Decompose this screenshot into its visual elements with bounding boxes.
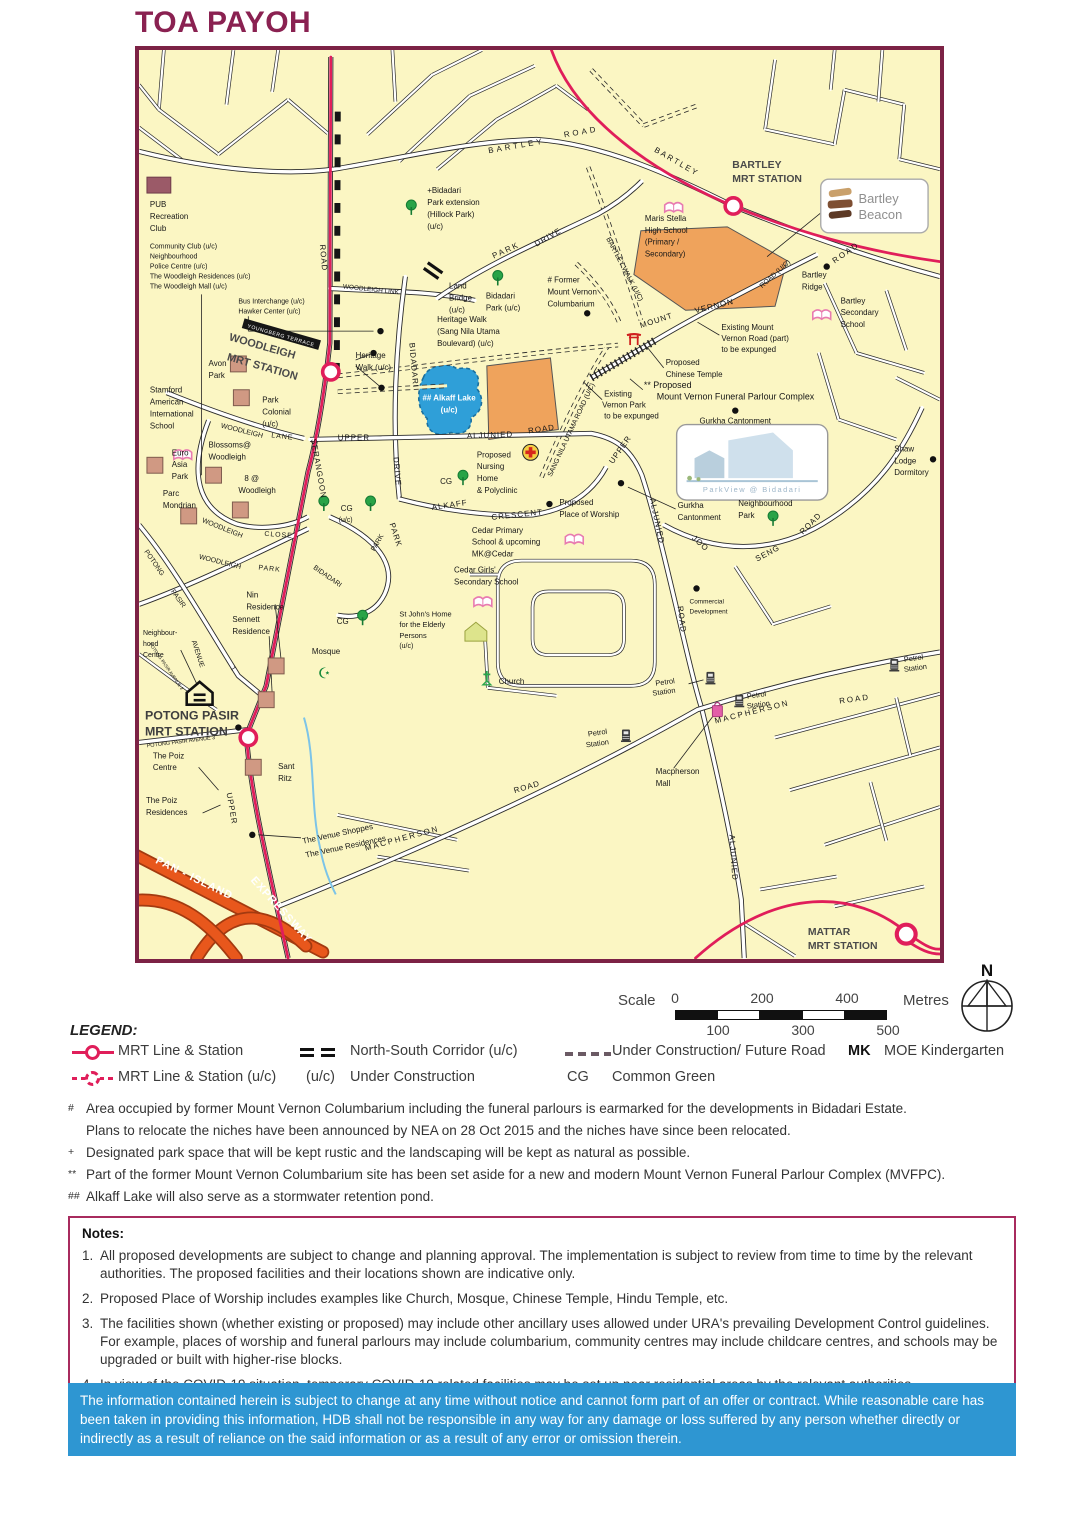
map-label: Mall [656,779,671,788]
map-label: Neighbour- [143,630,177,637]
road [819,353,839,420]
map-label: Woodleigh [209,452,246,461]
map-label: Lodge [894,456,917,465]
road [470,66,535,96]
legend-mrt-uc-label: MRT Line & Station (u/c) [118,1069,276,1085]
map-label: Church [499,677,525,686]
map-label: Park (u/c) [486,303,521,312]
map-label: Walk (u/c) [356,363,392,372]
map-label: CG [337,617,349,626]
nursing-home-icon [523,444,539,460]
map-label: WOODLEIGH LINK [343,283,400,296]
map-label: Secondary [841,308,879,317]
road [835,90,845,145]
map-label: Sennett [232,615,260,624]
footnote-text: Area occupied by former Mount Vernon Col… [86,1101,907,1116]
home-icon [465,622,487,641]
legend-heading: LEGEND: [70,1022,1030,1039]
school-icon [474,597,492,606]
map-label: CLOSE [264,531,293,540]
map-label: WOODLEIGH [201,517,244,540]
map-label: Maris Stella [645,214,687,223]
footnote: Plans to relocate the niches have been a… [68,1120,1018,1142]
map-label: SERANGOON [309,438,328,499]
road [790,747,940,790]
road [899,159,940,169]
map-label: MRT STATION [732,174,802,185]
condo-icon [268,658,284,674]
future-road-icon [565,1052,611,1056]
road [533,591,624,655]
map-label: (Primary / [645,238,680,247]
map-label: Cedar Girls' [454,566,496,575]
icon-part [377,328,383,334]
icon-part [235,724,241,730]
map-label: Development [690,608,728,615]
map-label: (u/c) [399,643,413,650]
map-label: Gurkha Cantonment [700,417,772,426]
legend-cg-abbr: CG [567,1069,589,1085]
road [773,606,831,624]
map-label: CRESCENT [491,508,543,522]
map-label: JOO [690,534,710,554]
map-label: Macpherson [656,767,700,776]
icon-part [705,683,715,685]
road [735,567,773,625]
footnote: ##Alkaff Lake will also serve as a storm… [68,1186,1018,1208]
page-title: TOA PAYOH [135,6,311,40]
map-label: Residence [232,627,270,636]
map-label: Recreation [150,212,188,221]
map-label: Club [150,224,167,233]
map-label: (u/c) [339,517,353,524]
road [368,75,433,135]
note-item: 2.Proposed Place of Worship includes exa… [82,1290,1002,1308]
school-icon [565,534,583,543]
footnote: +Designated park space that will be kept… [68,1142,1018,1164]
map-label: The Woodleigh Mall (u/c) [150,283,227,290]
map-label: The Poiz [146,796,177,805]
map-label: The Poiz [153,751,184,760]
tree-icon [493,271,503,286]
mrt-line-uc-icon [72,1070,114,1088]
road [760,877,837,890]
north-south-corridor [337,112,338,378]
footnote-text: Plans to relocate the niches have been a… [86,1123,791,1138]
map-label: Columbarium [547,299,595,308]
icon-part [147,457,163,473]
icon-part [624,731,629,734]
scale-label: Scale [618,992,656,1009]
legend-uc-label: Under Construction [350,1069,475,1085]
map-label: Chinese Temple [666,370,723,379]
map-label: ALJUNIED [648,498,666,545]
road-uc [591,70,644,126]
map-label: hood [143,641,159,648]
footnote-marker: + [68,1141,74,1163]
map-label: Gurkha [678,501,705,510]
footnote-marker: # [68,1097,74,1119]
map-label: PARK [258,565,281,574]
map-label: to be expunged [721,345,776,354]
map-label: Colonial [262,408,291,417]
icon-part [627,334,641,335]
road [845,90,905,105]
site-dot-icon [930,456,936,462]
road [226,50,233,105]
note-text: The facilities shown (whether existing o… [100,1316,997,1367]
mrt-line [246,57,330,958]
icon-part [546,501,552,507]
map-label: MATTAR [808,927,851,938]
map-label: Residence [246,602,284,611]
map-label: ALJUNIED [727,834,739,881]
map-label: MRT STATION [145,724,228,738]
map-label: DRIVE [391,457,403,487]
map-label: Existing Mount [721,323,774,332]
map-label: Proposed [559,498,593,507]
map-label: ROAD [563,124,599,139]
map-label: BARTLEY [732,160,781,171]
map-label: Parc [163,489,179,498]
map-label: Mount Vernon Funeral Parlour Complex [657,392,815,402]
map-label: Land [449,281,467,290]
school-icon [665,203,683,212]
map-label: CG [341,504,353,513]
note-number: 3. [82,1315,93,1333]
map-label: +Bidadari [427,186,461,195]
map-label: Avon [209,359,227,368]
icon-part [737,697,742,700]
map-label: Home [477,474,499,483]
note-number: 1. [82,1247,93,1265]
label-connector [258,835,301,838]
icon-part [245,759,261,775]
compass-north-label: N [981,961,993,980]
condo-icon [233,390,249,406]
map-label: BIDADARI [312,564,343,589]
legend-mk-label: MOE Kindergarten [884,1043,1004,1059]
map-label: Neighbourhood [738,499,792,508]
road [745,924,795,956]
map-label: Heritage Walk [437,315,487,324]
label-connector [199,767,219,790]
map-label: Nin [246,590,258,599]
icon-part [734,706,744,708]
icon-part [378,385,384,391]
map-label: Woodleigh [238,486,275,495]
scale-tick-0: 0 [653,990,697,1006]
map-label: Sant [278,762,295,771]
icon-part [249,832,255,838]
map-label: International [150,410,194,419]
icon-part [824,263,830,269]
page: TOA PAYOH YOUNGBERG TERRACEParkView @ Bi… [0,0,1086,1536]
icon-part [889,670,899,672]
petrol-station-icon [621,730,631,743]
map-label: High School [645,226,688,235]
map-label: Neighbourhood [150,254,198,261]
petrol-station-icon [889,659,899,672]
map-label: Shaw [894,444,914,453]
parkview-tree [687,476,692,481]
footnote-marker: ** [68,1163,76,1185]
site-dot-icon [377,328,383,334]
map-label: ROAD [839,692,871,705]
map-label: Mosque [312,647,341,656]
road [886,290,906,350]
label-connector [630,379,643,390]
map-label: PARK [388,522,404,549]
map-label: Park [172,472,188,481]
map-label: Station [903,662,927,674]
map-label: 8 @ [244,474,259,483]
condo-icon [258,692,274,708]
bartley-beacon-name: Beacon [859,207,903,222]
icon-part [325,671,329,675]
map-label: Euro [172,448,189,457]
map-label: Persons [399,631,427,640]
site-dot-icon [546,501,552,507]
legend-nsc-label: North-South Corridor (u/c) [350,1043,518,1059]
note-text: All proposed developments are subject to… [100,1248,972,1281]
north-south-corridor-icon [300,1048,335,1057]
site-dot-icon [584,310,590,316]
map-label: The Woodleigh Residences (u/c) [150,273,251,280]
icon-part [206,467,222,483]
map-label: CG [440,477,452,486]
footnote: #Area occupied by former Mount Vernon Co… [68,1098,1018,1120]
map-label: for the Elderly [399,620,445,629]
label-connector [698,322,720,335]
footnote-text: Alkaff Lake will also serve as a stormwa… [86,1189,434,1204]
map-label: Blossoms@ [209,440,251,449]
map-label: Park [738,511,754,520]
map-label: MK@Cedar [472,550,514,559]
map-label: Commercial [690,598,724,605]
map-label: (u/c) [427,222,443,231]
map-label: UPPER [338,433,370,442]
map-label: Proposed [666,358,700,367]
map-label: Petrol [587,727,608,739]
tree-icon [366,496,376,511]
disclaimer-banner: The information contained herein is subj… [68,1383,1016,1456]
map-label: PUB [150,200,166,209]
bartley-beacon-name: Bartley [859,191,900,206]
note-item: 3.The facilities shown (whether existing… [82,1315,1002,1369]
map-label: Bartley [802,270,827,279]
icon-part [892,661,897,664]
icon-part [147,177,171,193]
icon-part [181,508,197,524]
map-label: St John's Home [399,609,451,618]
icon-part [268,658,284,674]
map-label: Asia [172,460,188,469]
road-casing [533,591,624,655]
footnote-marker: ## [68,1185,80,1207]
map-label: Park [262,396,278,405]
icon-part [465,622,487,641]
map-label: AVENUE [190,640,205,669]
community-building-icon [187,682,213,705]
map-label: Station [585,737,609,749]
map-label: (Hillock Park) [427,210,475,219]
map-label: Cantonment [678,513,722,522]
icon-part [233,390,249,406]
parkview-tree [697,477,701,481]
condo-icon [232,502,248,518]
road [870,782,886,841]
icon-part [693,585,699,591]
footnotes: #Area occupied by former Mount Vernon Co… [68,1098,1018,1208]
icon-part [319,668,326,679]
icon-part [621,740,631,742]
road [139,139,940,276]
map-label: Secondary School [454,577,519,586]
map-label: Mount Vernon [547,287,596,296]
scale-bar-segments [675,1010,887,1020]
legend-future-road-label: Under Construction/ Future Road [612,1043,826,1059]
legend-row-2: MRT Line & Station (u/c) (u/c) Under Con… [70,1065,1030,1091]
canal [304,718,336,895]
map-label: Community Club (u/c) [150,244,217,251]
map-label: (Sang Nila Utama [437,327,500,336]
road-casing [278,652,940,906]
map-label: Cedar Primary [472,526,523,535]
map-label: Stamford [150,386,182,395]
map-label: (u/c) [441,406,458,415]
map-label: Centre [153,763,177,772]
map-label: Park [209,371,225,380]
note-text: Proposed Place of Worship includes examp… [100,1291,728,1306]
site-dot-icon [824,263,830,269]
icon-part [930,456,936,462]
parkview-caption: ParkView @ Bidadari [703,485,802,494]
map-label: ## Alkaff Lake [423,394,477,403]
footnote-text: Designated park space that will be kept … [86,1145,690,1160]
legend-cg-label: Common Green [612,1069,715,1085]
map-label: (u/c) [262,420,278,429]
road [497,86,557,120]
road-casing [139,139,940,276]
condo-icon [147,457,163,473]
map-label: Ridge [802,282,823,291]
map-label: Place of Worship [559,510,619,519]
legend-uc-abbr: (u/c) [306,1069,335,1085]
map-label: # Former [547,275,580,284]
site-dot-icon [693,585,699,591]
map-label: ROAD [676,605,688,633]
map-label: Residences [146,808,188,817]
tree-icon [768,511,778,526]
map-label: LANE [271,432,294,441]
road [392,50,395,102]
map-label: School & upcoming [472,538,540,547]
legend-mk-abbr: MK [848,1043,871,1059]
site-dot-icon [378,385,384,391]
map-label: POTONG PASIR [145,709,239,723]
mrt-station-marker [725,198,741,214]
mrt-station-marker [240,729,256,745]
map-label: Bidadari [486,291,515,300]
map-label: Hawker Center (u/c) [238,308,300,315]
road [839,420,897,440]
site-dot-icon [235,724,241,730]
road [432,50,482,75]
map-label: Heritage [356,351,387,360]
site-dot-icon [618,480,624,486]
road [765,129,835,144]
map-label: UPPER [224,792,238,825]
map-label: Ritz [278,774,292,783]
condo-icon [206,467,222,483]
map-label: Centre [143,652,164,659]
scale-tick-200: 200 [740,990,784,1006]
legend-mrt-label: MRT Line & Station [118,1043,243,1059]
map-label: Mondrian [163,501,196,510]
map-label: Dormitory [894,468,928,477]
condo-icon [245,759,261,775]
scale-unit: Metres [903,992,949,1009]
icon-part [618,480,624,486]
road [219,100,289,155]
note-item: 1.All proposed developments are subject … [82,1247,1002,1283]
footnote: **Part of the former Mount Vernon Columb… [68,1164,1018,1186]
map-label: School [150,422,175,431]
road-casing [498,561,655,686]
icon-part [732,407,738,413]
petrol-station-icon [705,672,715,685]
map-label: Park extension [427,198,480,207]
road-uc [644,106,698,126]
tree-icon [406,200,416,215]
road [857,353,925,373]
map-label: Bartley [841,296,866,305]
road [272,50,278,92]
condo-icon [181,508,197,524]
map-frame: YOUNGBERG TERRACEParkView @ BidadariBart… [135,46,944,963]
footnote-text: Part of the former Mount Vernon Columbar… [86,1167,945,1182]
map-label: to be expunged [604,412,659,421]
map-label: MRT STATION [808,941,878,952]
icon-part [258,692,274,708]
map-label: Bus Interchange (u/c) [238,298,304,305]
road [896,698,910,756]
mrt-station-marker [323,364,339,380]
map-label: ROAD [318,244,329,272]
map-label: (u/c) [449,305,465,314]
petrol-station-icon [734,695,744,708]
label-connector [203,805,221,813]
map-label: Vernon Park [602,401,646,410]
icon-part [708,674,713,677]
site-dot-icon [732,407,738,413]
map-label: DRIVE [533,226,563,248]
legend: LEGEND: MRT Line & Station North-South C… [70,1022,1030,1091]
road [488,688,557,696]
mrt-station-marker [897,925,916,944]
map-label: ALJUNIED [467,430,514,441]
map-label: ** Proposed [644,380,692,390]
map-label: Police Centre (u/c) [150,264,207,271]
map-label: Bridge [449,293,473,302]
chinese-temple-icon [627,334,641,345]
scale-tick-400: 400 [825,990,869,1006]
icon-part [232,502,248,518]
map-label: Nursing [477,462,504,471]
map-label: Vernon Road (part) [721,334,789,343]
road [896,378,940,400]
